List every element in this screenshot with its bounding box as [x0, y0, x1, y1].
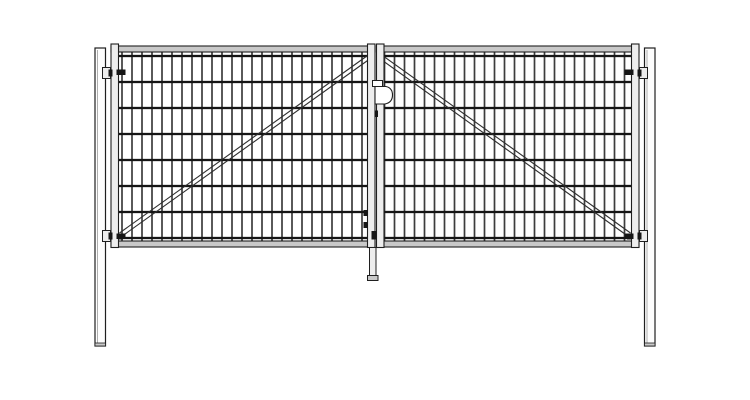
mesh-horizontal-wire-right [384, 55, 632, 57]
gate-technical-drawing [0, 0, 750, 400]
latch-keeper-bolt [364, 210, 369, 216]
mesh-horizontal-wire-left [119, 107, 368, 109]
mesh-horizontal-wire-right [384, 133, 632, 135]
bottom-rail-left [111, 241, 375, 247]
mesh-horizontal-wire-left [119, 237, 368, 239]
stile-right-hinge-side [377, 44, 385, 248]
hinge-upper-right-bolt [625, 70, 634, 76]
fence-post-right-foot [645, 343, 656, 346]
latch-keeper-bolt [364, 222, 369, 228]
hinge-lower-left-pin [109, 233, 113, 240]
mesh-horizontal-wire-left [119, 55, 368, 57]
top-rail-left [111, 46, 375, 52]
hinge-upper-left-bolt [117, 70, 126, 76]
mesh-horizontal-wire-right [384, 237, 632, 239]
stile-left-latch-side [368, 44, 376, 248]
hinge-lower-right-pin [638, 233, 642, 240]
mesh-horizontal-wire-right [384, 185, 632, 187]
hinge-lower-left-bolt [117, 234, 126, 240]
hinge-upper-right-pin [638, 70, 642, 77]
lock-bolt [375, 111, 379, 118]
drop-rod-cap [368, 276, 379, 281]
hinge-lower-right-bolt [625, 234, 634, 240]
fence-post-left [95, 48, 106, 346]
mesh-horizontal-wire-right [384, 107, 632, 109]
lock-top-tab [373, 81, 383, 87]
mesh-horizontal-wire-left [119, 133, 368, 135]
fence-post-left-foot [95, 343, 106, 346]
mesh-horizontal-wire-left [119, 159, 368, 161]
bottom-rail-right [377, 241, 640, 247]
drop-rod-guide [372, 231, 377, 240]
gate-drawing-svg [0, 0, 750, 400]
fence-post-right [645, 48, 656, 346]
drop-rod [370, 248, 377, 277]
mesh-horizontal-wire-right [384, 159, 632, 161]
top-rail-right [377, 46, 640, 52]
lock-latch-body [375, 87, 393, 105]
hinge-upper-left-pin [109, 70, 113, 77]
mesh-horizontal-wire-left [119, 185, 368, 187]
